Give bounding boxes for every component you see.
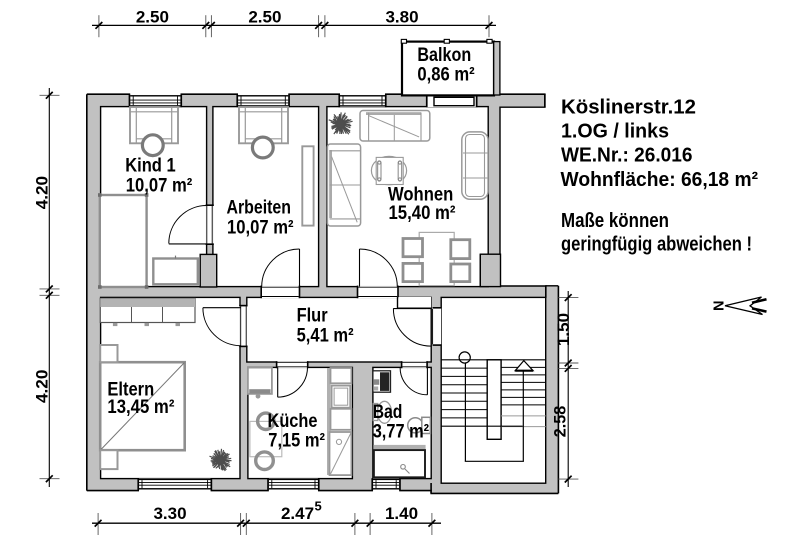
svg-text:Flur: Flur (297, 306, 329, 327)
svg-text:10,07 m²: 10,07 m² (227, 218, 294, 239)
svg-text:geringfügig abweichen !: geringfügig abweichen ! (561, 233, 752, 255)
svg-text:4.20: 4.20 (32, 176, 51, 209)
svg-text:1.OG / links: 1.OG / links (561, 121, 669, 143)
svg-text:13,45 m²: 13,45 m² (107, 397, 174, 418)
svg-text:3.30: 3.30 (153, 504, 186, 523)
svg-text:1.40: 1.40 (385, 504, 418, 523)
svg-text:Bad: Bad (373, 402, 403, 423)
svg-text:15,40 m²: 15,40 m² (389, 203, 456, 224)
svg-text:3.80: 3.80 (385, 7, 418, 26)
svg-text:10,07 m²: 10,07 m² (126, 176, 193, 197)
svg-text:7,15 m²: 7,15 m² (268, 431, 325, 452)
svg-text:4.20: 4.20 (32, 370, 51, 403)
svg-text:1.50: 1.50 (554, 313, 573, 346)
svg-text:5,41 m²: 5,41 m² (297, 326, 354, 347)
svg-text:5: 5 (315, 499, 322, 514)
svg-text:2.50: 2.50 (136, 7, 169, 26)
svg-text:3,77 m²: 3,77 m² (373, 422, 429, 443)
svg-text:Köslinerstr.12: Köslinerstr.12 (561, 97, 696, 119)
svg-text:2.58: 2.58 (550, 406, 569, 438)
svg-text:Arbeiten: Arbeiten (227, 198, 292, 219)
svg-text:Küche: Küche (268, 411, 318, 432)
svg-text:0,86 m²: 0,86 m² (417, 65, 474, 86)
svg-text:Balkon: Balkon (417, 45, 471, 66)
svg-text:WE.Nr.: 26.016: WE.Nr.: 26.016 (561, 145, 693, 167)
svg-text:Wohnfläche: 66,18 m²: Wohnfläche: 66,18 m² (561, 169, 759, 191)
svg-text:Maße können: Maße können (561, 210, 669, 232)
svg-text:2.50: 2.50 (248, 7, 281, 26)
svg-text:Kind 1: Kind 1 (125, 156, 176, 177)
svg-text:2.47: 2.47 (281, 504, 314, 523)
